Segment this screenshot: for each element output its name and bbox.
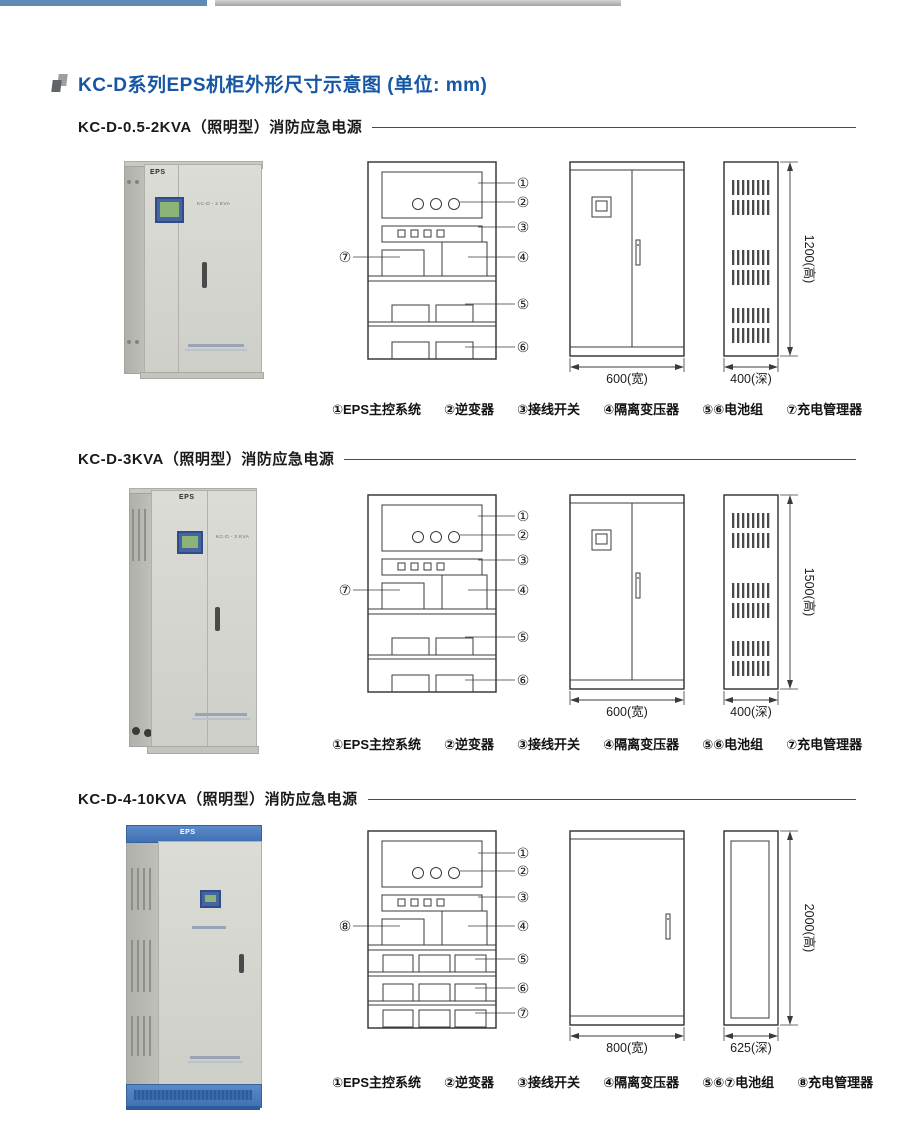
svg-text:⑦: ⑦ <box>339 249 352 265</box>
legend-item: ④隔离变压器 <box>603 1072 679 1091</box>
svg-text:③: ③ <box>517 219 530 235</box>
svg-text:①: ① <box>517 845 530 861</box>
svg-text:④: ④ <box>517 249 530 265</box>
page-title: KC-D系列EPS机柜外形尺寸示意图 (单位: mm) <box>78 70 487 97</box>
legend-row: ①EPS主控系统 ②逆变器 ③接线开关 ④隔离变压器 ⑤⑥⑦电池组 ⑧充电管理器 <box>332 1072 873 1091</box>
model-label: KC-D - 2 KVA <box>197 202 230 207</box>
svg-text:⑤: ⑤ <box>517 951 530 967</box>
svg-text:④: ④ <box>517 918 530 934</box>
svg-text:③: ③ <box>517 552 530 568</box>
legend-item: ②逆变器 <box>444 734 494 753</box>
svg-text:400(深): 400(深) <box>730 705 772 719</box>
cabinet-front-door <box>158 841 262 1086</box>
cabinet-front-door <box>151 490 257 748</box>
legend-item: ⑧充电管理器 <box>797 1072 873 1091</box>
legend-item: ⑤⑥电池组 <box>702 399 763 418</box>
svg-text:400(深): 400(深) <box>730 372 772 386</box>
model-label: KC-D - 3 KVA <box>216 535 249 540</box>
technical-drawing: ①②③④⑤⑥⑦600(宽)400(深)1500(高) <box>330 487 900 727</box>
vent-grille <box>131 868 151 910</box>
legend-item: ①EPS主控系统 <box>332 399 421 418</box>
bottom-strip <box>126 1106 260 1110</box>
legend-row: ①EPS主控系统 ②逆变器 ③接线开关 ④隔离变压器 ⑤⑥电池组 ⑦充电管理器 <box>332 734 862 753</box>
lcd-display <box>200 890 221 908</box>
section-title: KC-D-4-10KVA（照明型）消防应急电源 <box>78 788 358 809</box>
product-photo: EPS KC-D - 3 KVA <box>115 483 275 761</box>
svg-text:1200(高): 1200(高) <box>802 235 817 284</box>
door-handle <box>202 262 207 288</box>
svg-text:⑤: ⑤ <box>517 296 530 312</box>
legend-item: ④隔离变压器 <box>603 734 679 753</box>
svg-text:600(宽): 600(宽) <box>606 704 648 719</box>
svg-text:①: ① <box>517 175 530 191</box>
svg-text:⑦: ⑦ <box>517 1005 530 1021</box>
legend-item: ⑤⑥电池组 <box>702 734 763 753</box>
company-marking <box>185 349 247 351</box>
title-rule-line <box>344 459 856 460</box>
legend-row: ①EPS主控系统 ②逆变器 ③接线开关 ④隔离变压器 ⑤⑥电池组 ⑦充电管理器 <box>332 399 862 418</box>
legend-item: ①EPS主控系统 <box>332 1072 421 1091</box>
legend-item: ③接线开关 <box>517 399 580 418</box>
eps-brand-label: EPS <box>180 829 196 836</box>
legend-item: ⑤⑥⑦电池组 <box>702 1072 774 1091</box>
svg-text:2000(高): 2000(高) <box>802 904 817 953</box>
door-seam <box>178 164 179 372</box>
product-photo: EPS KC-D - 2 KVA <box>112 152 282 387</box>
svg-text:②: ② <box>517 527 530 543</box>
legend-item: ③接线开关 <box>517 734 580 753</box>
cabinet-base <box>140 372 264 379</box>
screw <box>135 340 139 344</box>
svg-text:②: ② <box>517 863 530 879</box>
eps-brand-label: EPS <box>179 494 195 501</box>
cabinet-base <box>147 746 259 754</box>
screw <box>135 180 139 184</box>
screw <box>127 180 131 184</box>
catalog-page: KC-D系列EPS机柜外形尺寸示意图 (单位: mm) KC-D-0.5-2KV… <box>0 0 900 1132</box>
eps-brand-label: EPS <box>150 169 166 176</box>
company-marking <box>188 344 244 347</box>
top-gray-bar <box>215 0 621 6</box>
svg-text:③: ③ <box>517 889 530 905</box>
svg-text:⑦: ⑦ <box>339 582 352 598</box>
legend-item: ⑦充电管理器 <box>786 399 862 418</box>
legend-item: ④隔离变压器 <box>603 399 679 418</box>
svg-text:800(宽): 800(宽) <box>606 1040 648 1055</box>
svg-text:⑤: ⑤ <box>517 629 530 645</box>
section-title-row: KC-D-4-10KVA（照明型）消防应急电源 <box>78 788 856 809</box>
cable-hole <box>132 727 140 735</box>
title-rule-line <box>372 127 856 128</box>
technical-drawing: ①②③④⑤⑥⑦⑧800(宽)625(深)2000(高) <box>330 823 900 1063</box>
model-marking <box>192 926 226 929</box>
legend-item: ②逆变器 <box>444 399 494 418</box>
vent-grille <box>134 1090 252 1100</box>
legend-item: ①EPS主控系统 <box>332 734 421 753</box>
svg-text:625(深): 625(深) <box>730 1041 772 1055</box>
svg-text:①: ① <box>517 508 530 524</box>
svg-text:⑥: ⑥ <box>517 672 530 688</box>
door-handle <box>239 954 244 973</box>
company-marking <box>190 1056 240 1059</box>
company-marking <box>192 718 250 720</box>
product-photo: EPS <box>118 818 268 1114</box>
lcd-display <box>155 197 184 223</box>
door-handle <box>215 607 220 631</box>
svg-text:④: ④ <box>517 582 530 598</box>
legend-item: ②逆变器 <box>444 1072 494 1091</box>
svg-text:600(宽): 600(宽) <box>606 371 648 386</box>
top-blue-bar <box>0 0 207 6</box>
section-title-row: KC-D-3KVA（照明型）消防应急电源 <box>78 448 856 469</box>
screw <box>127 340 131 344</box>
title-rule-line <box>368 799 856 800</box>
vent-grille <box>131 1016 151 1056</box>
company-marking <box>188 1061 243 1063</box>
door-seam <box>207 490 208 746</box>
technical-drawing: ①②③④⑤⑥⑦600(宽)400(深)1200(高) <box>330 154 900 394</box>
svg-text:⑥: ⑥ <box>517 339 530 355</box>
page-header: KC-D系列EPS机柜外形尺寸示意图 (单位: mm) <box>50 70 487 96</box>
legend-item: ⑦充电管理器 <box>786 734 862 753</box>
company-marking <box>195 713 247 716</box>
section-title: KC-D-3KVA（照明型）消防应急电源 <box>78 448 334 469</box>
svg-text:⑥: ⑥ <box>517 980 530 996</box>
section-title: KC-D-0.5-2KVA（照明型）消防应急电源 <box>78 116 362 137</box>
overlapping-squares-icon <box>50 73 70 93</box>
lcd-display <box>177 531 203 554</box>
legend-item: ③接线开关 <box>517 1072 580 1091</box>
svg-text:②: ② <box>517 194 530 210</box>
section-title-row: KC-D-0.5-2KVA（照明型）消防应急电源 <box>78 116 856 137</box>
vent-grille <box>132 509 148 561</box>
svg-text:1500(高): 1500(高) <box>802 568 817 617</box>
vent-grille <box>131 940 151 992</box>
svg-text:⑧: ⑧ <box>339 918 352 934</box>
